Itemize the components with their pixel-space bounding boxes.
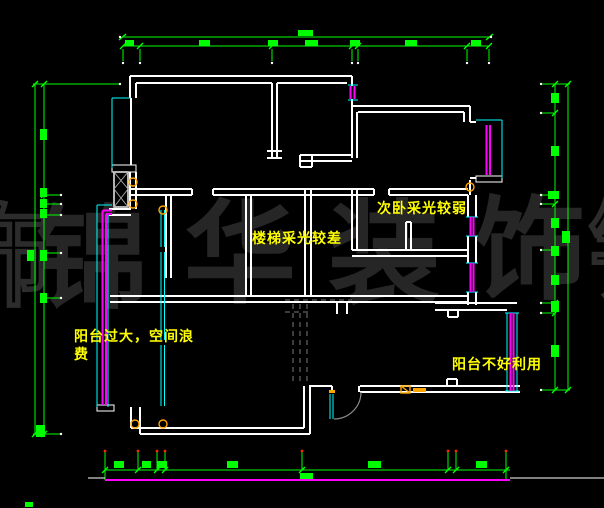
outlet-symbol — [131, 420, 139, 428]
door-swing-arc — [334, 392, 361, 419]
watermark-edge-right: 锦 — [588, 189, 604, 320]
dimension-text-blob — [298, 30, 313, 36]
door-hinge-mark — [329, 390, 335, 393]
dimension-text-blob — [40, 129, 47, 140]
annotation-stairs: 楼梯采光较差 — [252, 230, 342, 247]
annotation-left-balcony-line1: 阳台过大，空间浪 — [74, 328, 194, 345]
column-hatch — [114, 172, 128, 207]
annotation-secondary-bedroom: 次卧采光较弱 — [377, 200, 467, 217]
annotation-left-balcony-line2: 费 — [74, 346, 89, 363]
entry-door — [329, 390, 361, 419]
dimension-text-blob — [551, 93, 559, 103]
sensor-symbol — [413, 388, 426, 392]
annotation-right-balcony: 阳台不好利用 — [452, 356, 542, 373]
cad-viewport: 饰 锦 华 装 饰 锦 — [0, 0, 604, 508]
dimension-chain-top — [119, 30, 493, 64]
watermark-char-4: 饰 — [474, 185, 586, 316]
dimension-text-blob — [114, 461, 124, 468]
outlet-symbol — [159, 420, 167, 428]
watermark-char-1: 锦 — [36, 194, 148, 325]
watermark-char-2: 华 — [184, 189, 296, 320]
floor-plan-drawing: 饰 锦 华 装 饰 锦 — [0, 0, 604, 508]
baseline-bottom — [88, 478, 604, 480]
